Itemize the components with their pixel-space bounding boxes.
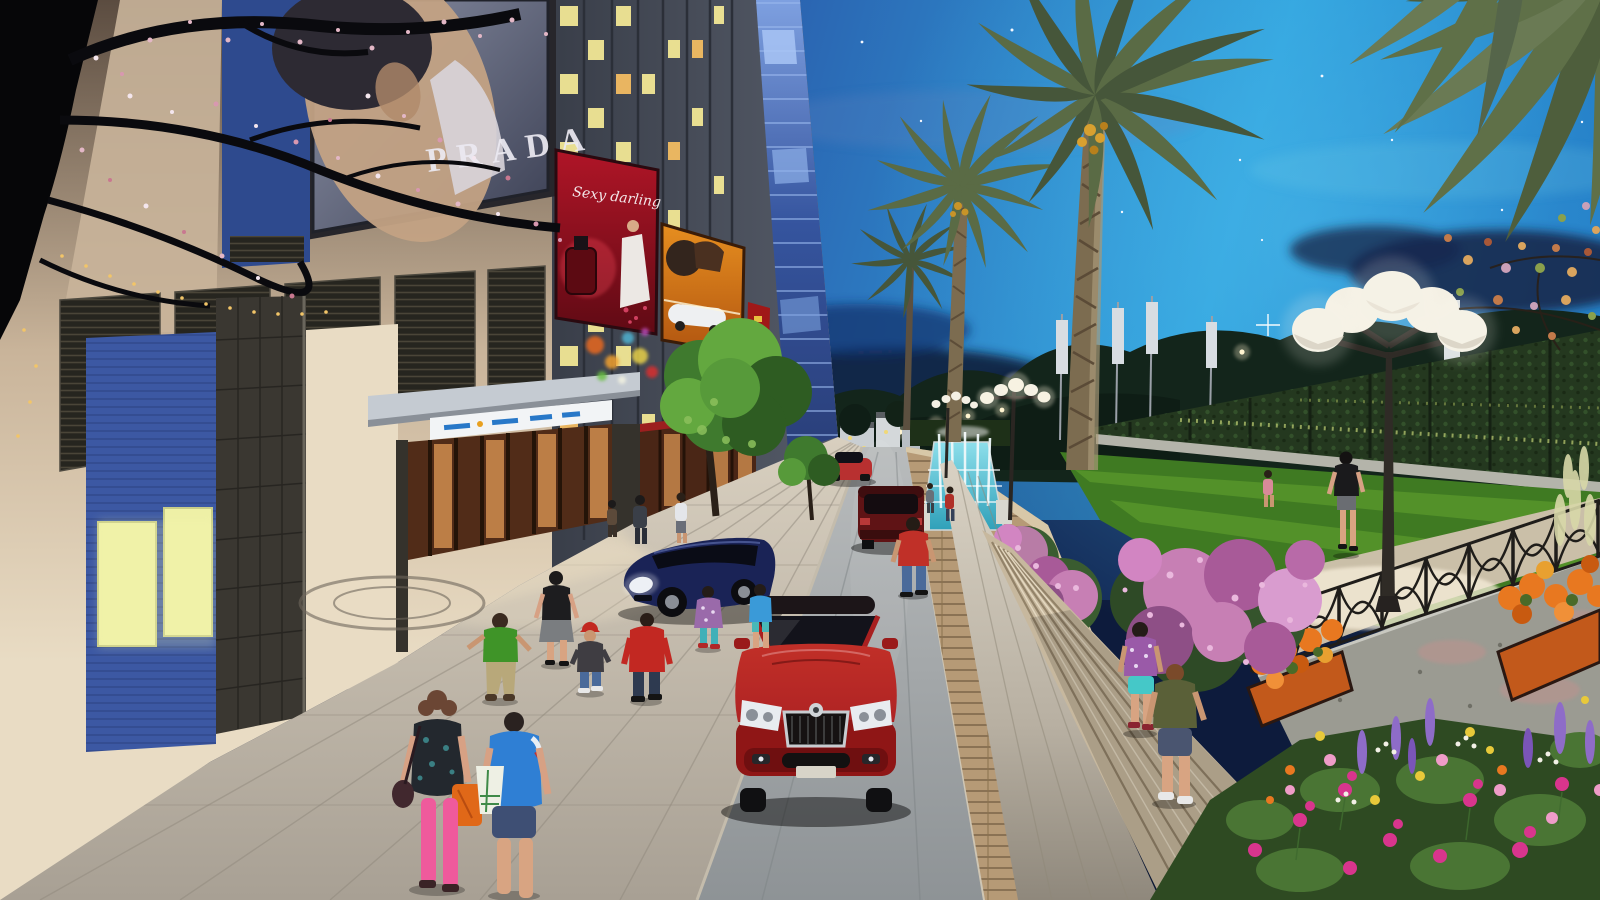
side-mirror-right [882,638,898,649]
granite-column [216,296,306,734]
billboard-perfume: Sexy darling [556,150,662,334]
lit-beige-wall [306,324,398,700]
license-plate [796,766,836,778]
scene-canvas: PRADA Sexy darling [0,0,1600,900]
blue-accent-wall [86,332,216,752]
louver-vent [230,236,304,262]
side-mirror-left [734,638,750,649]
architectural-rendering: PRADA Sexy darling [0,0,1600,900]
